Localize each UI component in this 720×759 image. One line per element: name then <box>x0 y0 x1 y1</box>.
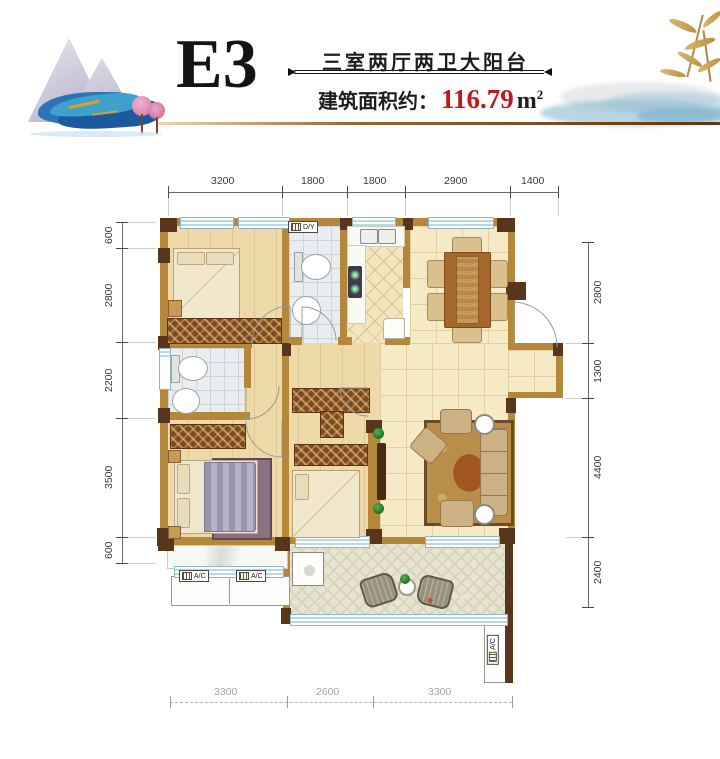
dim-top-1: 3200 <box>211 175 234 187</box>
column-left-bay <box>158 248 170 263</box>
column-bay-left <box>158 537 174 551</box>
ac-platform-divider <box>229 576 230 604</box>
wall-bath1-kitchen <box>340 226 347 345</box>
dim-top-2: 1800 <box>301 175 324 187</box>
column-top-left <box>160 218 177 232</box>
side-table <box>474 414 495 435</box>
bamboo-leaf-icon <box>684 35 717 52</box>
master-wardrobe <box>170 424 246 449</box>
dim-bottom-3: 3300 <box>428 686 451 698</box>
bedroom2-bay-window <box>180 217 234 229</box>
dim-left-2: 2800 <box>103 262 115 328</box>
column-right-bottom <box>499 528 515 544</box>
sofa-main <box>480 428 508 516</box>
sink <box>292 296 321 325</box>
ac-label-1: A/C <box>179 570 209 582</box>
ac-label-text: A/C <box>194 573 206 580</box>
kitchen-sink <box>360 229 378 244</box>
subtitle-divider-line <box>294 73 544 74</box>
ac-label-3: A/C <box>487 635 499 665</box>
bamboo-leaf-icon <box>660 67 687 78</box>
toilet-bowl <box>301 254 331 280</box>
arrowhead-icon <box>544 68 552 76</box>
tree-trunk-icon <box>156 117 158 134</box>
kitchen-sink <box>378 229 396 244</box>
nightstand <box>168 300 182 317</box>
nightstand <box>168 526 181 539</box>
dim-top-5: 1400 <box>521 175 544 187</box>
area-unit: m <box>517 88 537 114</box>
area-label: 建筑面积约： <box>318 91 438 113</box>
dining-window <box>428 217 494 229</box>
washing-machine <box>292 552 324 586</box>
dim-bottom-1: 3300 <box>214 686 237 698</box>
wall-bath2-bottom <box>160 412 250 420</box>
tv-stand <box>377 443 386 500</box>
floorplan-page: E3 三室两厅两卫大阳台 建筑面积约：116.79m2 3200 1800 18… <box>0 0 720 759</box>
pillow <box>177 252 205 265</box>
table-runner <box>456 256 479 324</box>
unit-icon <box>291 223 301 231</box>
bamboo-leaf-icon <box>701 9 720 29</box>
column-top-right <box>497 218 515 232</box>
master-blanket <box>204 462 256 532</box>
dim-left-4: 3500 <box>103 445 115 509</box>
ac-label-text: A/C <box>251 573 263 580</box>
dy-label: D/Y <box>288 221 318 233</box>
foyer-wall-bottom <box>508 392 563 398</box>
water-reflection-icon <box>30 131 162 137</box>
nightstand <box>168 450 181 463</box>
header: E3 三室两厅两卫大阳台 建筑面积约：116.79m2 <box>0 0 720 150</box>
dim-left-1: 600 <box>103 222 115 248</box>
dy-label-text: D/Y <box>303 224 315 231</box>
balcony-railing <box>290 614 508 626</box>
bamboo-leaf-icon <box>668 16 698 35</box>
plant <box>373 503 384 514</box>
bedroom2-wardrobe <box>167 318 282 344</box>
dim-bottom-2: 2600 <box>316 686 339 698</box>
kitchen-cabinet <box>383 318 405 339</box>
sink <box>172 388 200 414</box>
balcony-wall-right <box>505 543 513 683</box>
column-study-left-top <box>282 343 291 356</box>
wall-bed2-bath1 <box>282 226 289 345</box>
dining-chair <box>489 260 508 288</box>
pillow <box>295 474 309 500</box>
column-right-living <box>506 398 516 413</box>
dim-top-4: 2900 <box>444 175 467 187</box>
entrance-door-arc <box>514 302 557 347</box>
toilet-bowl <box>178 356 208 381</box>
ac-unit-icon <box>489 652 497 662</box>
living-balcony-window <box>425 536 500 548</box>
wall-study-left <box>282 343 289 543</box>
foyer-floor <box>508 350 556 392</box>
header-rule <box>158 122 720 125</box>
dining-chair <box>489 293 508 321</box>
area-value: 116.79 <box>438 84 517 114</box>
column-bay-right <box>275 537 290 551</box>
ac-label-2: A/C <box>236 570 266 582</box>
wall-kitchen-bottom-a <box>338 337 352 345</box>
wall-bath2-right <box>244 348 251 388</box>
unit-code: E3 <box>176 30 258 100</box>
study-wardrobe-low <box>294 444 368 466</box>
pillow <box>177 498 190 528</box>
subtitle-divider-line <box>294 70 544 71</box>
dim-left-5: 600 <box>103 537 115 563</box>
ac-label-text: A/C <box>489 638 496 650</box>
dim-right-3: 4400 <box>592 435 604 499</box>
pillow <box>177 464 190 494</box>
entrance-lintel <box>506 282 526 300</box>
armchair <box>440 409 472 434</box>
study-wardrobe-top <box>292 388 370 413</box>
plant <box>373 428 384 439</box>
side-table <box>474 504 495 525</box>
area-unit-sup: 2 <box>537 87 544 102</box>
ac-unit-icon <box>239 572 249 580</box>
bathroom1-floor <box>289 226 340 343</box>
dim-right-1: 2800 <box>592 260 604 324</box>
dim-right-2: 1300 <box>592 344 604 398</box>
area-line: 建筑面积约：116.79m2 <box>318 84 543 115</box>
bedroom2-bay-window2 <box>238 217 290 229</box>
dim-right-4: 2400 <box>592 540 604 604</box>
stove <box>348 266 362 298</box>
study-wardrobe-stub <box>320 411 344 438</box>
dim-left-3: 2200 <box>103 348 115 412</box>
column-foyer-corner <box>553 343 563 356</box>
dim-top-3: 1800 <box>363 175 386 187</box>
plant <box>400 574 410 584</box>
pillow <box>206 252 234 265</box>
column-left-mid2 <box>158 408 170 423</box>
ac-unit-icon <box>182 572 192 580</box>
armchair <box>440 500 474 527</box>
arrowhead-icon <box>288 68 296 76</box>
bathroom2-window <box>159 348 171 390</box>
